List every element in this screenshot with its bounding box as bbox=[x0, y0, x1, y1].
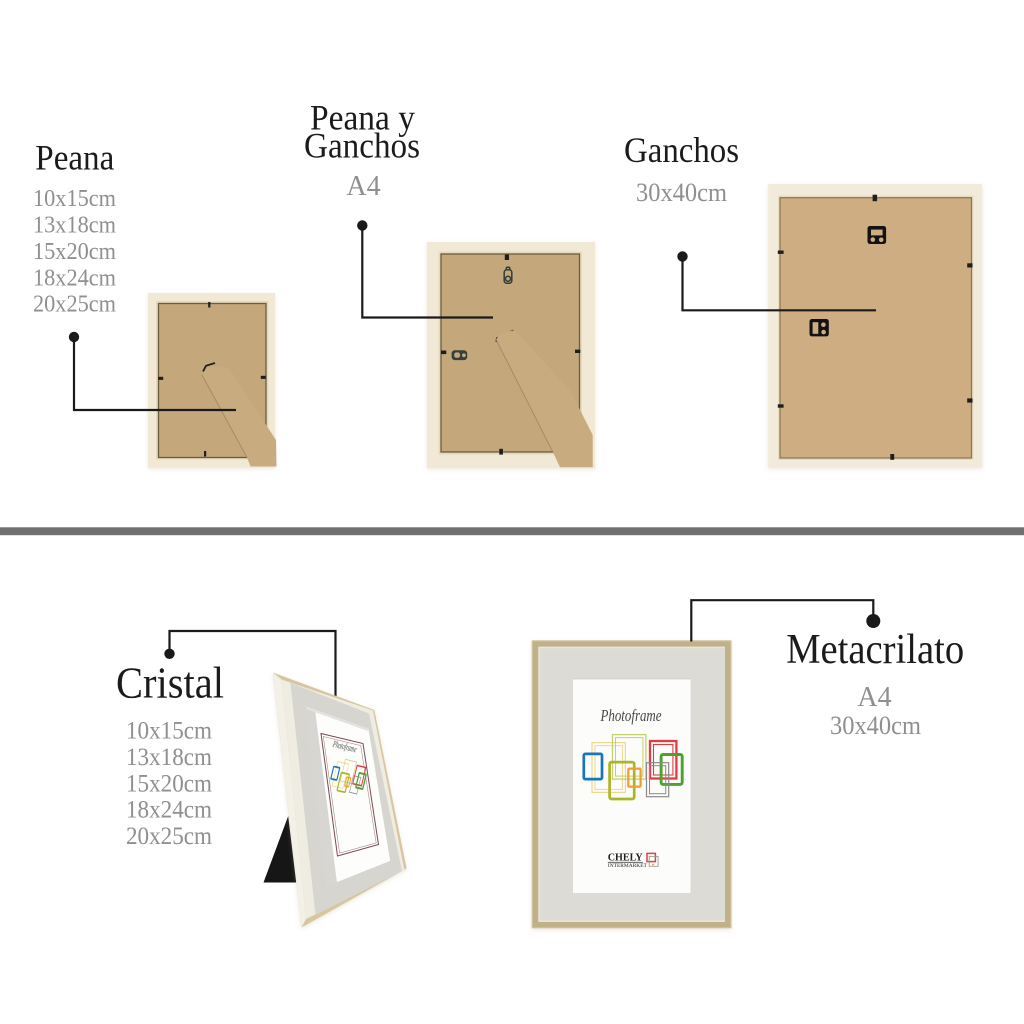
svg-text:10x15cm: 10x15cm bbox=[126, 718, 213, 745]
svg-text:Ganchos: Ganchos bbox=[624, 130, 739, 170]
svg-text:30x40cm: 30x40cm bbox=[830, 711, 921, 740]
svg-text:15x20cm: 15x20cm bbox=[126, 770, 213, 797]
svg-text:A4: A4 bbox=[857, 682, 891, 713]
svg-text:13x18cm: 13x18cm bbox=[33, 213, 116, 239]
svg-text:10x15cm: 10x15cm bbox=[33, 186, 116, 212]
svg-text:Ganchos: Ganchos bbox=[304, 126, 420, 166]
svg-text:15x20cm: 15x20cm bbox=[33, 239, 116, 265]
svg-text:Metacrilato: Metacrilato bbox=[786, 627, 964, 673]
svg-text:Photoframe: Photoframe bbox=[600, 706, 662, 725]
svg-text:A4: A4 bbox=[346, 171, 380, 202]
svg-text:13x18cm: 13x18cm bbox=[126, 744, 213, 771]
svg-text:18x24cm: 18x24cm bbox=[126, 797, 213, 824]
svg-text:INTERMARKET: INTERMARKET bbox=[608, 863, 648, 869]
svg-text:18x24cm: 18x24cm bbox=[33, 265, 116, 291]
svg-text:CHELY: CHELY bbox=[608, 852, 643, 864]
svg-text:20x25cm: 20x25cm bbox=[126, 823, 213, 850]
svg-text:Cristal: Cristal bbox=[116, 659, 224, 708]
svg-text:30x40cm: 30x40cm bbox=[636, 178, 727, 207]
svg-text:20x25cm: 20x25cm bbox=[33, 292, 116, 318]
svg-text:Peana: Peana bbox=[35, 138, 114, 178]
